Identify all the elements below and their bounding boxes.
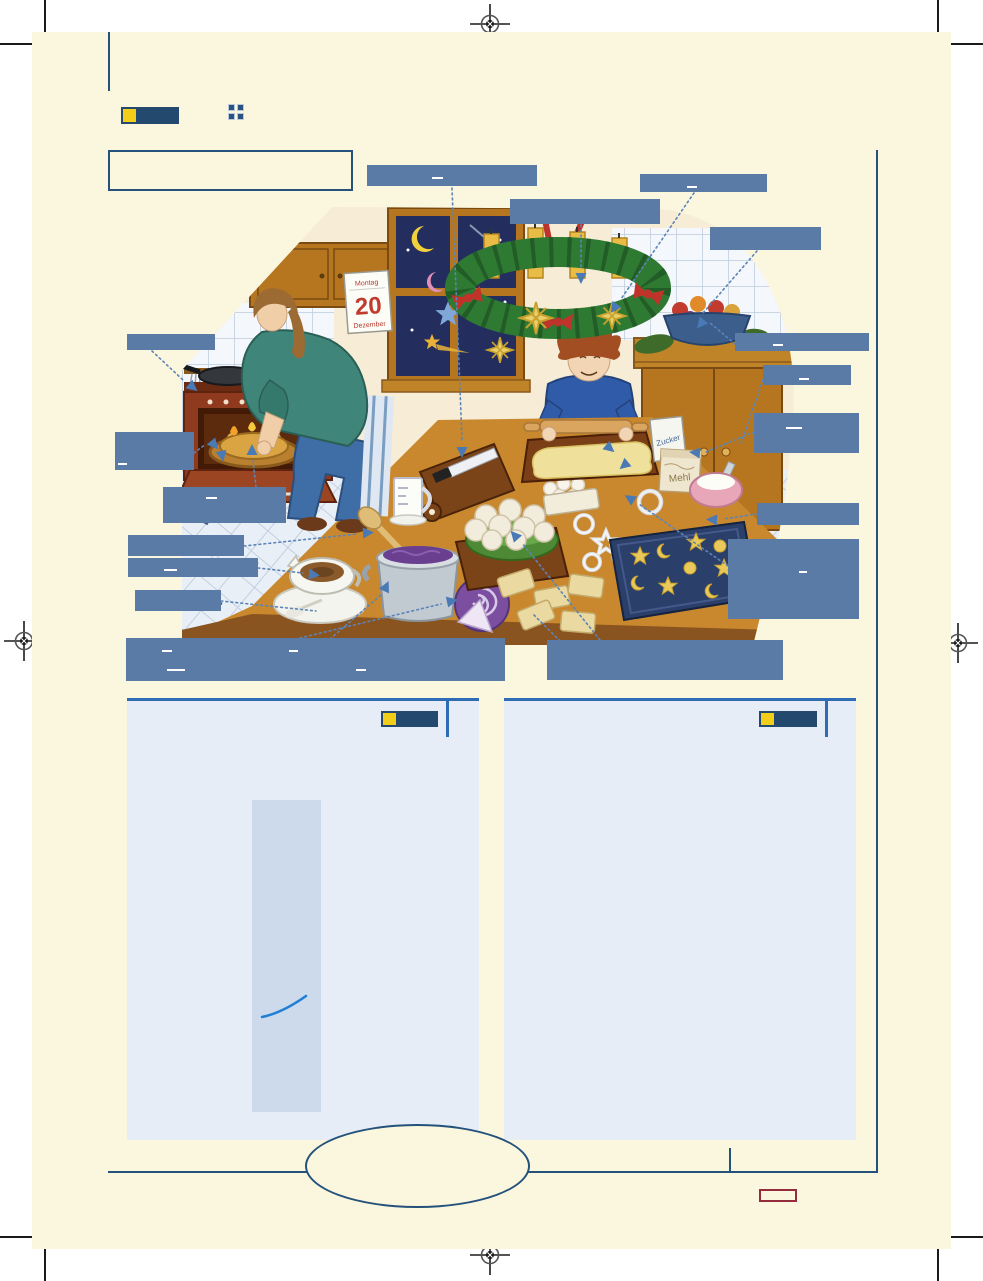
answer-box-cutting-board	[367, 165, 537, 186]
answer-box-dumplings	[547, 640, 783, 680]
answer-box-fruit-bowl	[735, 333, 869, 351]
blank-dash	[786, 427, 802, 429]
blank-dash	[289, 650, 298, 652]
blank-dash	[799, 378, 809, 380]
answer-box-gravy	[128, 558, 258, 577]
content-right-border	[876, 150, 878, 1172]
panel-left-accent-line	[446, 700, 449, 737]
answer-box-frying-pan	[127, 334, 215, 350]
exercise-panel-right	[504, 698, 856, 1140]
answer-box-candles	[710, 227, 821, 250]
panel-right-accent-line	[825, 700, 828, 737]
answer-box-oven	[163, 487, 286, 523]
header-badge	[121, 107, 179, 124]
blank-dash	[206, 497, 217, 499]
blank-dash	[773, 344, 783, 346]
blank-dash	[356, 669, 366, 671]
answer-box-plate	[135, 590, 221, 611]
blank-dash	[687, 186, 697, 188]
panel-right-badge-yellow-square	[761, 713, 774, 725]
answer-box-straw-star	[640, 174, 767, 192]
four-squares-icon	[228, 104, 244, 120]
answer-box-roast	[115, 432, 194, 470]
page-number-box	[759, 1189, 797, 1202]
header-badge-yellow-square	[123, 109, 136, 122]
workbook-page: Montag 20 Dezember	[0, 0, 983, 1281]
blank-dash	[118, 463, 127, 465]
answer-box-wooden-spoon	[128, 535, 244, 556]
blank-dash	[162, 650, 172, 652]
oval-frame	[305, 1124, 530, 1208]
blank-dash	[799, 571, 807, 573]
title-box	[108, 150, 353, 191]
panel-right-badge	[759, 711, 817, 727]
pencil-stroke	[252, 960, 322, 1030]
answer-box-baking-tray	[757, 503, 859, 525]
blank-dash	[167, 669, 185, 671]
header-rule	[108, 32, 110, 91]
panel-left-column	[252, 800, 321, 1112]
footer-tick	[729, 1148, 731, 1172]
blank-dash	[432, 177, 443, 179]
answer-box-cookie-cutters	[728, 539, 859, 619]
answer-box-flour-sugar	[754, 413, 859, 453]
blank-dash	[164, 569, 177, 571]
answer-box-cupboard	[763, 365, 851, 385]
answer-box-pot-cabbage	[126, 638, 505, 681]
panel-left-badge-yellow-square	[383, 713, 396, 725]
answer-box-advent-wreath	[510, 199, 660, 224]
panel-left-badge	[381, 711, 438, 727]
